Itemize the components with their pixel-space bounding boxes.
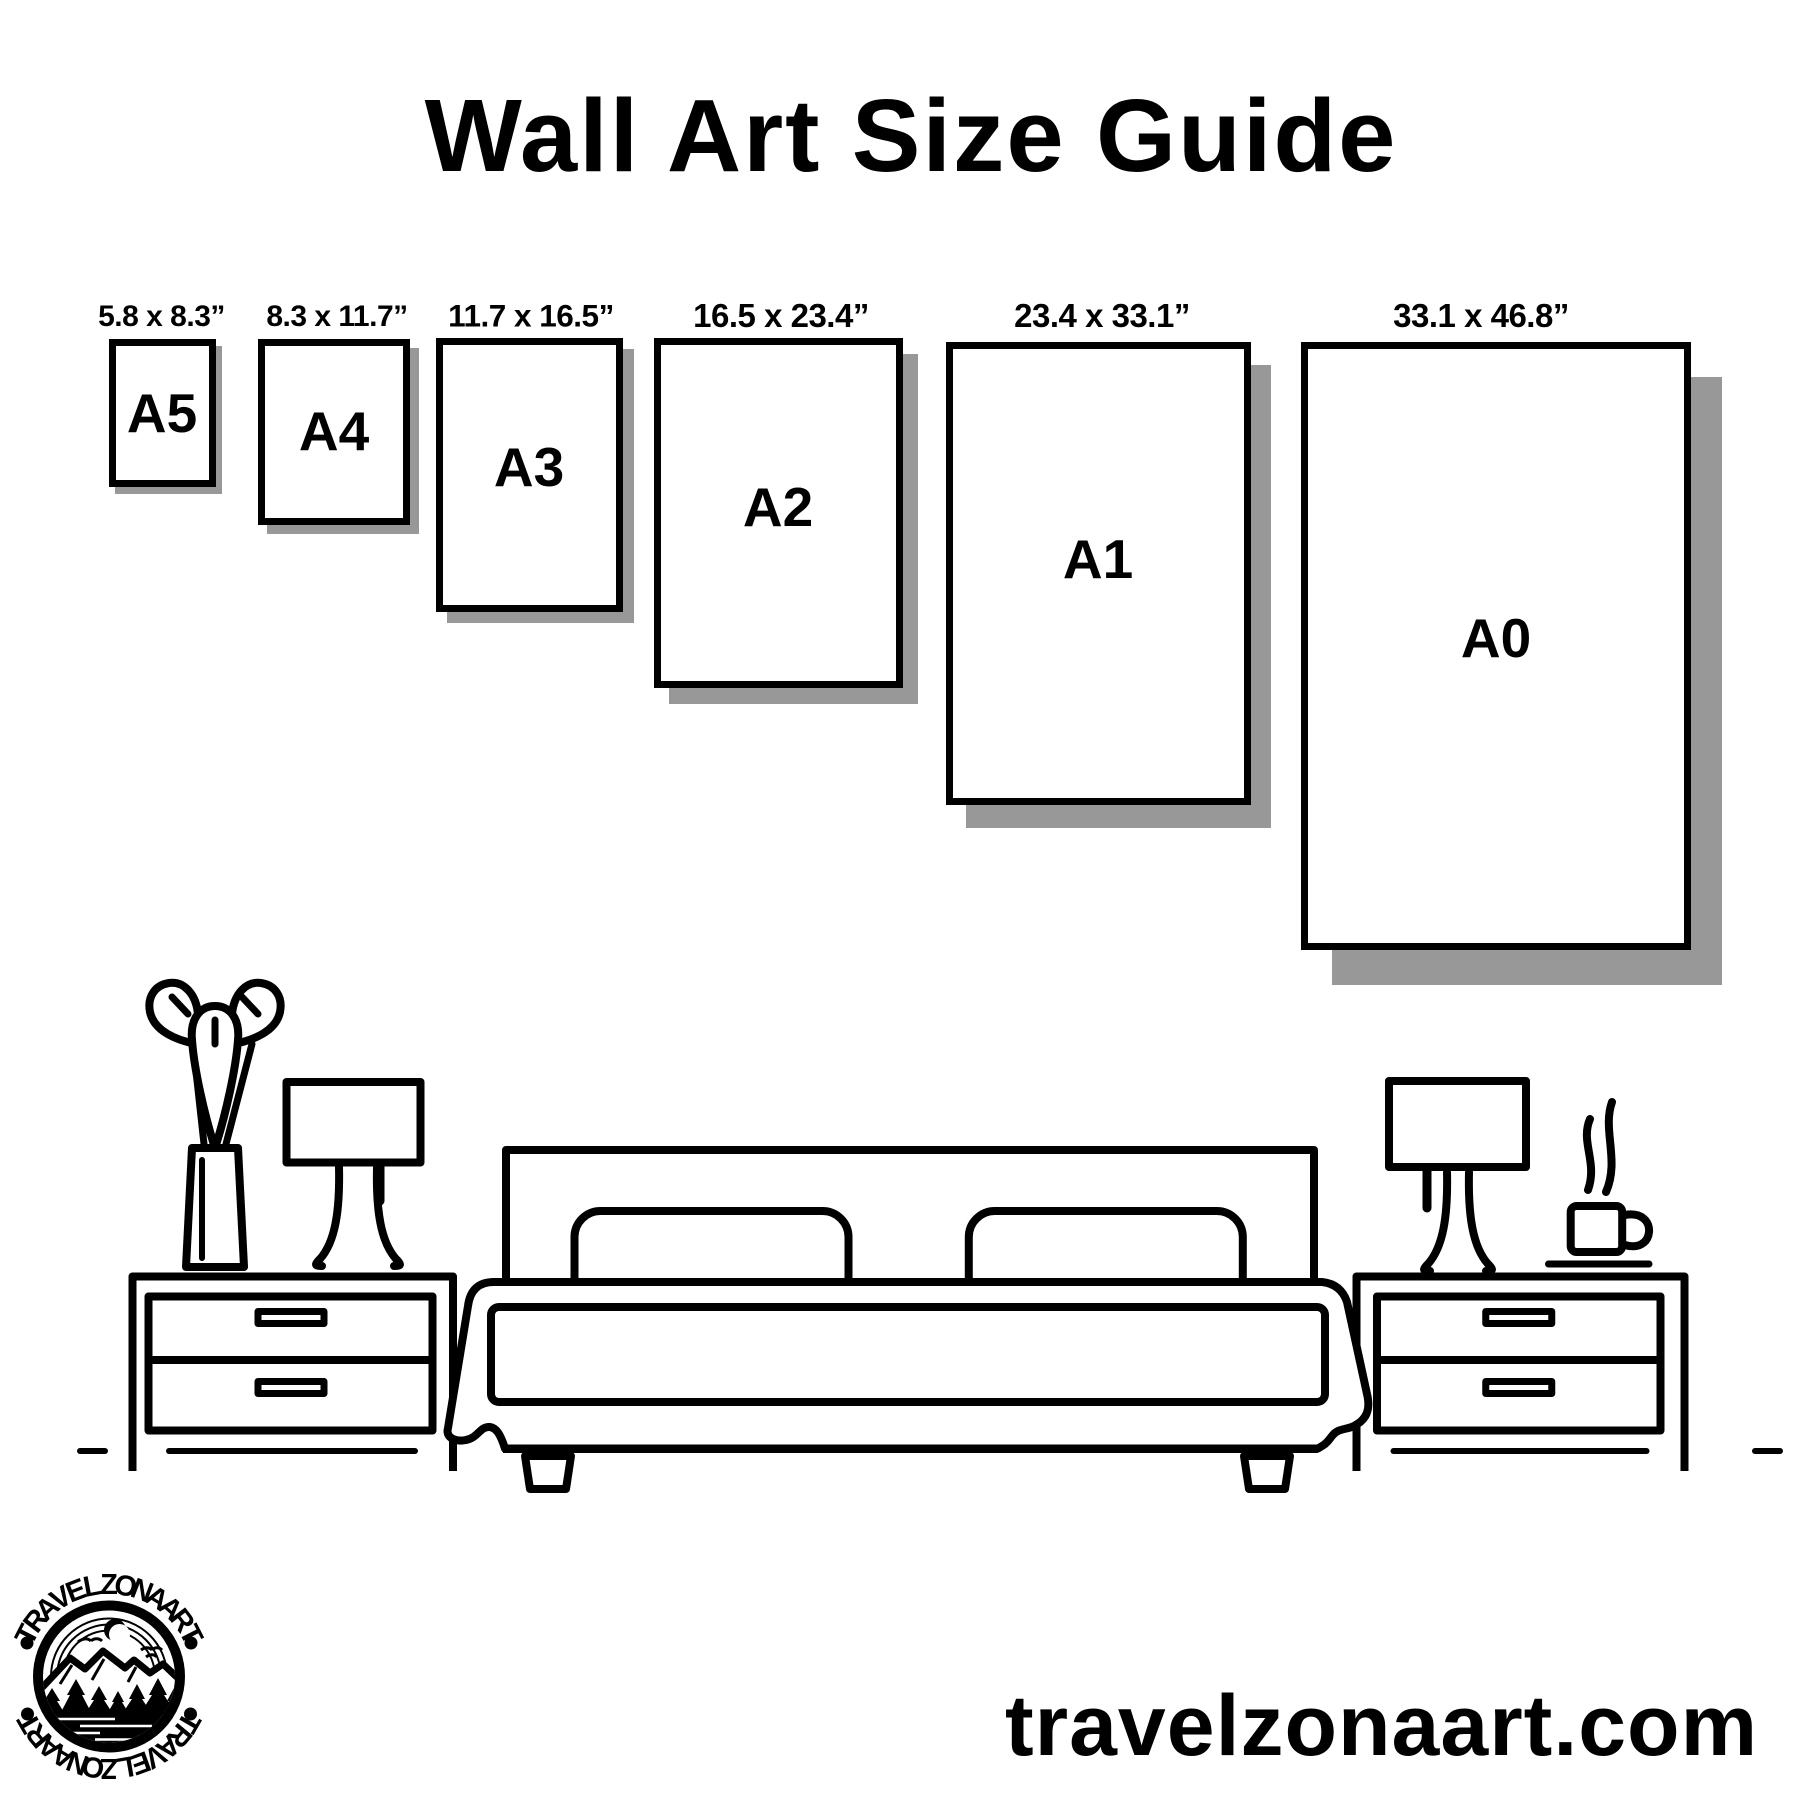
svg-text:23.4 x 33.1”: 23.4 x 33.1” [1014, 297, 1190, 334]
svg-text:A5: A5 [127, 382, 197, 444]
svg-text:A2: A2 [743, 476, 813, 538]
svg-text:Wall Art Size Guide: Wall Art Size Guide [425, 78, 1398, 193]
svg-text:A3: A3 [494, 436, 564, 498]
svg-text:11.7 x 16.5”: 11.7 x 16.5” [448, 298, 614, 334]
svg-text:8.3 x 11.7”: 8.3 x 11.7” [266, 300, 407, 333]
svg-text:A1: A1 [1063, 528, 1133, 590]
svg-text:A0: A0 [1461, 607, 1531, 669]
svg-text:33.1 x 46.8”: 33.1 x 46.8” [1393, 297, 1569, 334]
svg-text:A4: A4 [299, 400, 370, 462]
svg-text:travelzonaart.com: travelzonaart.com [1005, 1678, 1758, 1774]
svg-text:5.8 x 8.3”: 5.8 x 8.3” [98, 300, 225, 333]
svg-text:16.5 x 23.4”: 16.5 x 23.4” [693, 297, 869, 334]
